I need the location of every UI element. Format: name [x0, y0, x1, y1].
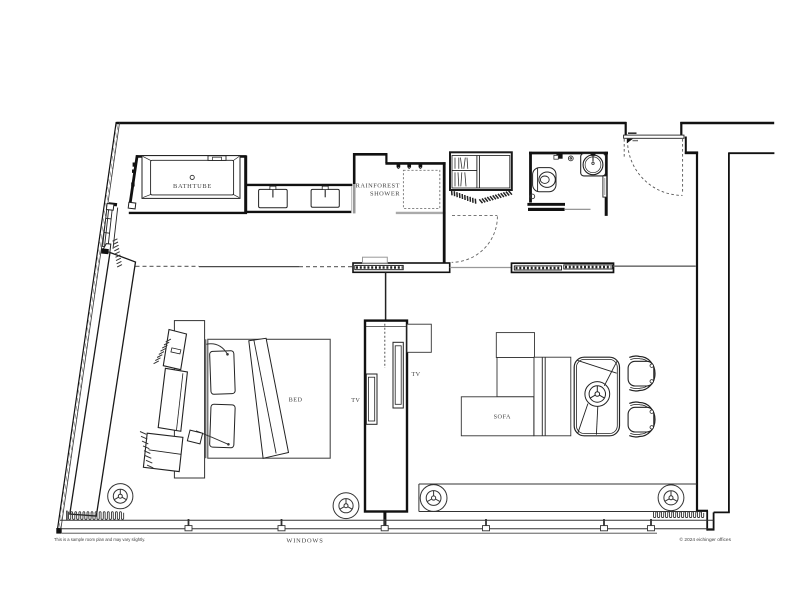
svg-text:TV: TV	[412, 371, 421, 378]
svg-text:BATHTUBE: BATHTUBE	[173, 183, 212, 190]
svg-text:SHOWER: SHOWER	[370, 190, 400, 197]
svg-text:RAINFOREST: RAINFOREST	[356, 183, 400, 190]
svg-text:TV: TV	[351, 397, 360, 404]
svg-text:SOFA: SOFA	[494, 414, 511, 421]
svg-text:© 2024 eichinger offices: © 2024 eichinger offices	[680, 536, 732, 543]
svg-text:WINDOWS: WINDOWS	[286, 538, 323, 545]
svg-text:BED: BED	[289, 397, 303, 404]
svg-text:This is a sample room plan and: This is a sample room plan and may vary …	[54, 537, 145, 542]
